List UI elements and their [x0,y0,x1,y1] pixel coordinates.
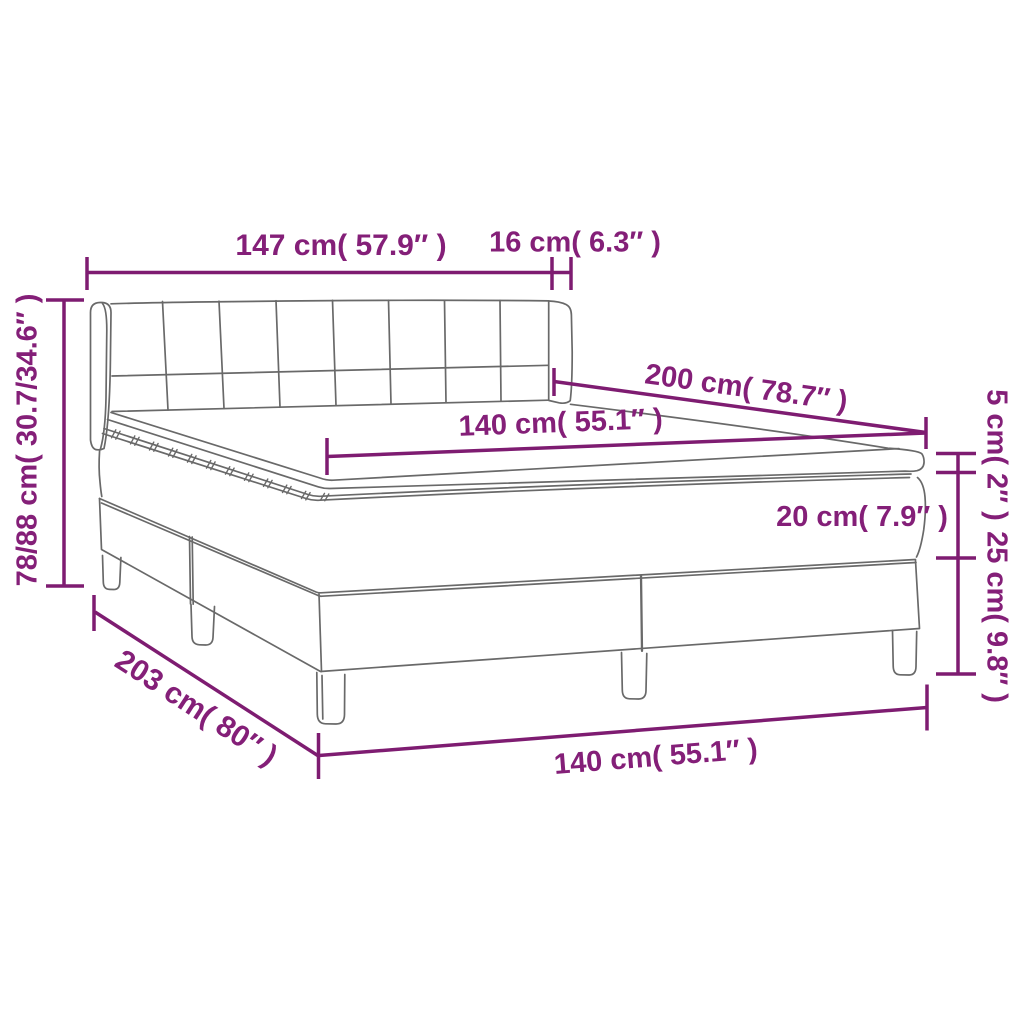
svg-text:78/88 cm( 30.7/34.6″ ): 78/88 cm( 30.7/34.6″ ) [12,294,44,587]
svg-text:147 cm( 57.9″ ): 147 cm( 57.9″ ) [235,229,446,262]
svg-text:203 cm( 80″ ): 203 cm( 80″ ) [109,644,283,773]
svg-text:140 cm( 55.1″ ): 140 cm( 55.1″ ) [553,733,759,781]
svg-text:140 cm( 55.1″ ): 140 cm( 55.1″ ) [458,403,663,443]
svg-text:20 cm( 7.9″ ): 20 cm( 7.9″ ) [776,501,948,533]
svg-text:25 cm( 9.8″ ): 25 cm( 9.8″ ) [981,531,1013,703]
svg-text:5 cm( 2″ ): 5 cm( 2″ ) [981,389,1013,521]
svg-text:16 cm( 6.3″ ): 16 cm( 6.3″ ) [489,227,661,259]
